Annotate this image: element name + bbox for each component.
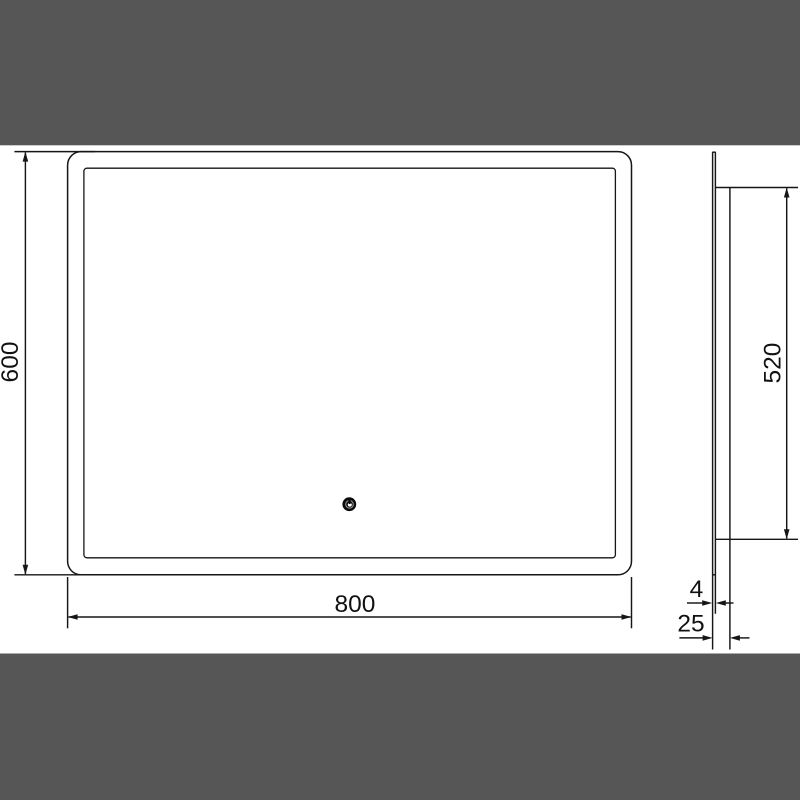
svg-text:600: 600 [0,342,24,383]
svg-text:520: 520 [760,343,787,384]
svg-text:800: 800 [335,591,376,618]
svg-text:4: 4 [690,576,704,603]
svg-text:25: 25 [677,611,704,638]
